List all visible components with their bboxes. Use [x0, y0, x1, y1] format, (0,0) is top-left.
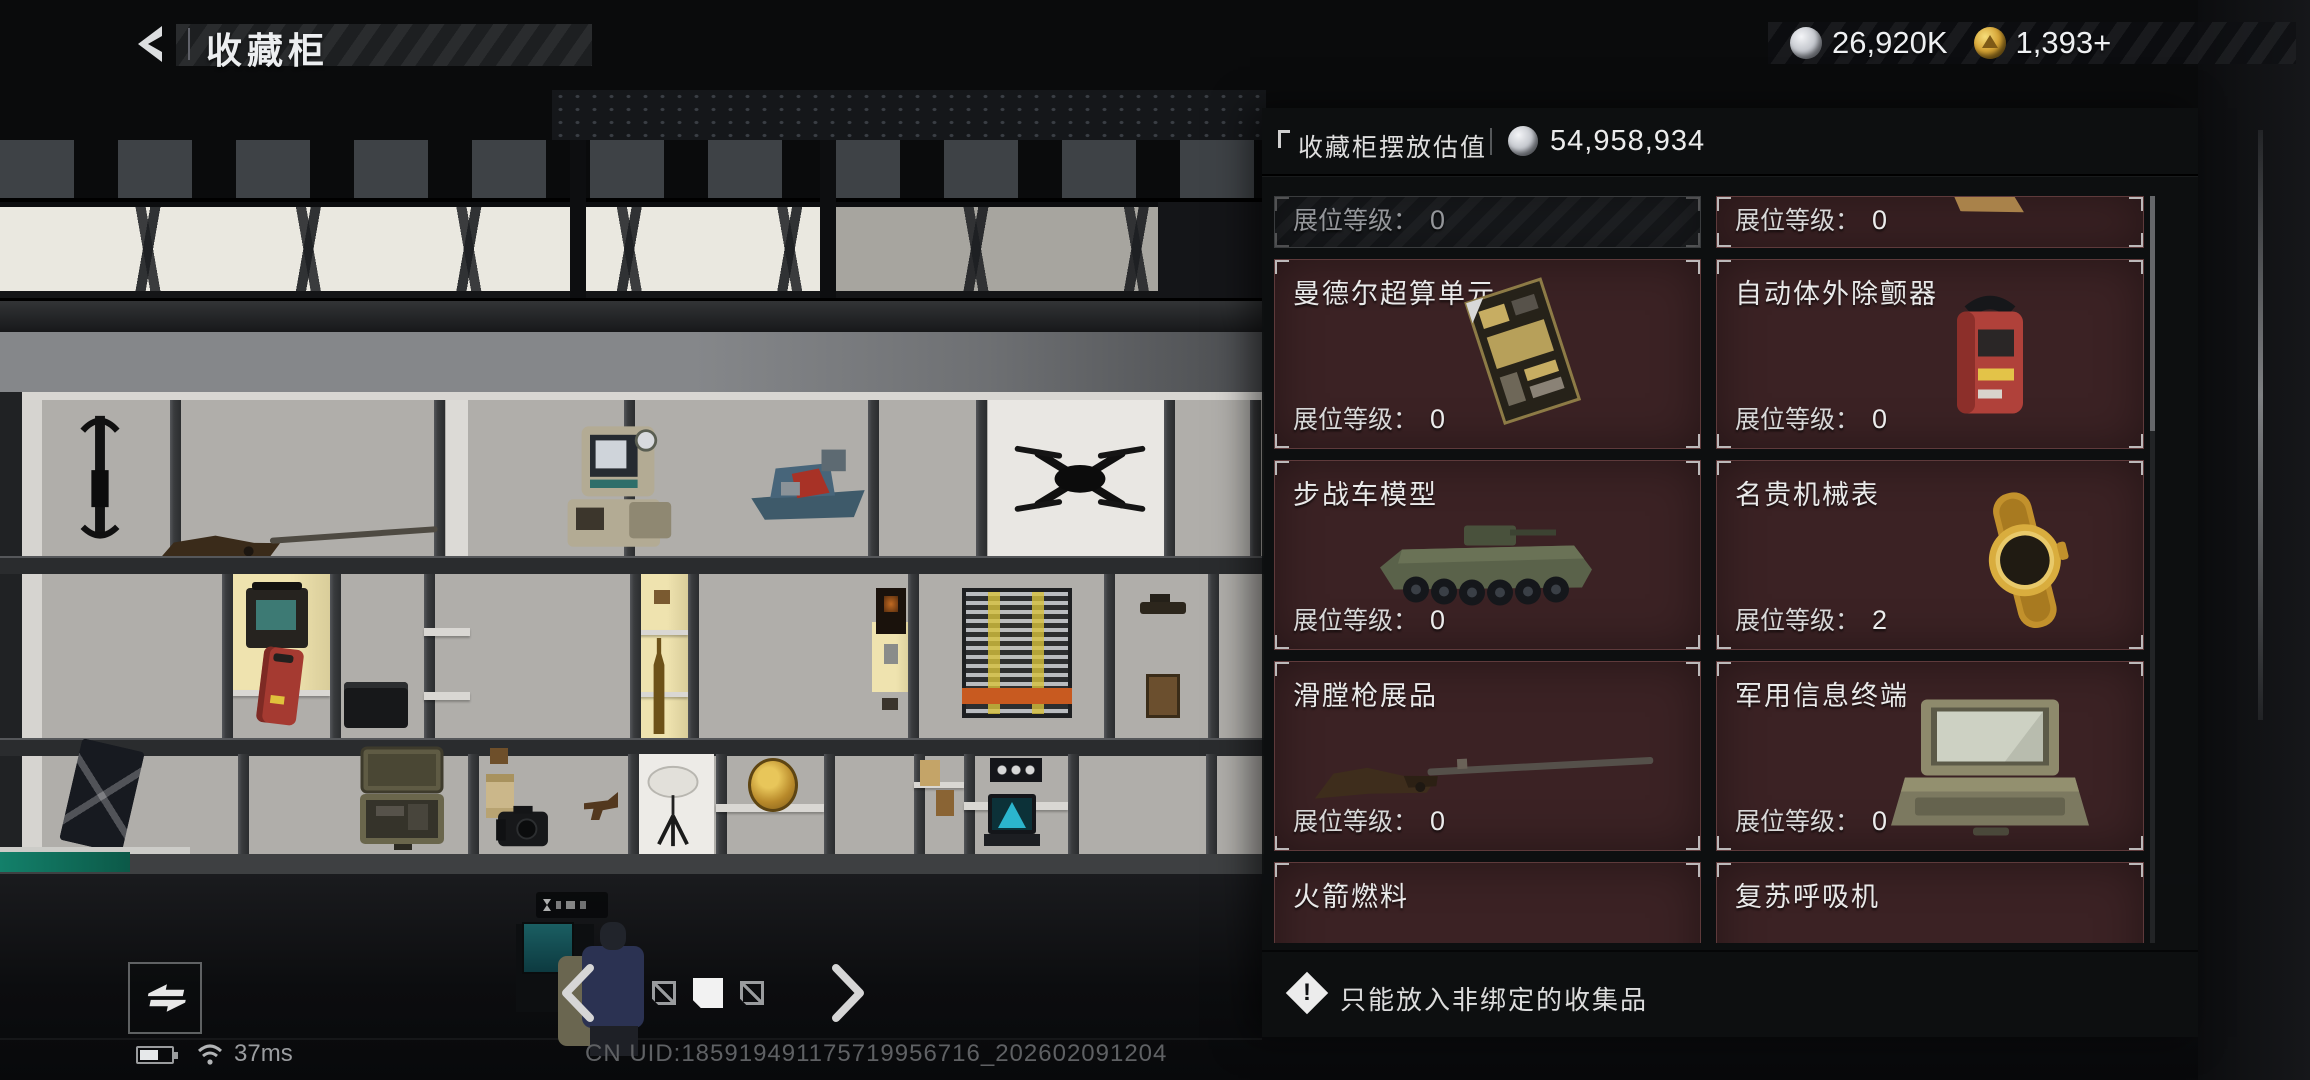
- scrollbar-thumb[interactable]: [2150, 196, 2155, 431]
- booth-level-row: 展位等级：2: [1735, 601, 1887, 637]
- booth-level-value: 0: [1872, 205, 1887, 235]
- exhibit-trinket: [490, 748, 508, 764]
- gold-watch-image: [1932, 469, 2115, 650]
- exhibit-crossbow: [74, 406, 126, 554]
- booth-level-row: 展位等级：0: [1293, 601, 1445, 637]
- warning-diamond-icon: !: [1286, 972, 1328, 1014]
- exhibit-battery-module: [962, 588, 1072, 718]
- nameplate-glyph: [566, 901, 575, 909]
- exhibit-gauge-panel: [990, 758, 1042, 782]
- exhibit-trinket: [654, 590, 670, 604]
- shelf-divider: [330, 574, 341, 740]
- silver-currency-value[interactable]: 26,920K: [1832, 25, 1948, 61]
- collection-panel: 收藏柜摆放估值 54,958,934 展位等级：0 展位等级：0 曼德尔超算单元: [1262, 108, 2198, 1037]
- panel-scrollbar[interactable]: [2150, 196, 2155, 943]
- bracket-icon: [1278, 130, 1290, 148]
- booth-level-row: 展位等级：0: [1735, 400, 1887, 436]
- booth-level-row: 展位等级：0: [1293, 802, 1445, 838]
- shelf-divider: [688, 574, 699, 740]
- exhibit-pistol: [584, 792, 618, 820]
- terminal-image: [1885, 694, 2095, 849]
- shelf-divider: [630, 574, 641, 740]
- cabinet-top-edge: [0, 392, 1264, 400]
- exhibit-poster: [876, 588, 906, 634]
- shelf-divider: [1164, 400, 1175, 558]
- header-separator: [1262, 174, 2198, 176]
- shelf-divider: [238, 754, 249, 854]
- shelf-ledge: [424, 628, 470, 636]
- collectible-card-partial[interactable]: 展位等级：0: [1716, 196, 2144, 248]
- shelf-divider: [908, 574, 919, 740]
- exhibit-camera-device: [494, 804, 552, 852]
- note-text: 只能放入非绑定的收集品: [1340, 980, 1648, 1017]
- shelf-divider: [424, 574, 435, 740]
- exhibit-teal-terminal: [982, 788, 1042, 852]
- booth-level-value: 0: [1872, 806, 1887, 836]
- right-wall: [2198, 0, 2310, 1080]
- gold-currency-value[interactable]: 1,393+: [2016, 25, 2112, 61]
- upper-wall: [0, 332, 1264, 392]
- cabinet-base: [0, 854, 1264, 874]
- back-chevron-icon: [132, 23, 170, 65]
- cabinet-left-edge: [0, 392, 22, 874]
- booth-level-value: 0: [1430, 205, 1445, 235]
- exhibit-field-radio: [246, 588, 308, 648]
- collectible-card-terminal[interactable]: 军用信息终端 展位等级：0: [1716, 661, 2144, 851]
- next-page-button[interactable]: [828, 962, 868, 1024]
- shelf-divider: [1250, 400, 1261, 558]
- panel-title: 收藏柜摆放估值: [1298, 128, 1487, 164]
- booth-level-label: 展位等级：: [1735, 808, 1860, 836]
- shelf-ledge: [636, 630, 688, 635]
- collection-cabinet-screen: 收藏柜 26,920K 1,393+ 收藏柜摆放估值 54,958,934 展位…: [0, 0, 2310, 1080]
- booth-level-value: 0: [1430, 605, 1445, 635]
- card-title: 军用信息终端: [1735, 674, 1909, 713]
- item-sliver: [1950, 196, 2027, 220]
- booth-level-value: 0: [1430, 404, 1445, 434]
- ceiling-light-panel: [0, 202, 828, 298]
- booth-level-label: 展位等级：: [1293, 406, 1418, 434]
- chevron-right-icon: [828, 962, 868, 1024]
- gold-coin-icon[interactable]: [1974, 27, 2006, 59]
- exhibit-small-item: [882, 698, 898, 710]
- back-button[interactable]: [126, 20, 176, 68]
- collectible-card-empty[interactable]: 展位等级：0: [1274, 196, 1701, 248]
- exhibit-small-card: [920, 760, 940, 786]
- cabinet-teal-strip: [0, 852, 130, 872]
- booth-level-value: 2: [1872, 605, 1887, 635]
- exhibit-military-case: [356, 744, 448, 852]
- card-title: 自动体外除颤器: [1735, 272, 1938, 311]
- card-title: 滑膛枪展品: [1293, 674, 1438, 713]
- booth-level-label: 展位等级：: [1293, 607, 1418, 635]
- exhibit-umbrella-antenna: [640, 760, 706, 852]
- shelf-divider: [976, 400, 987, 558]
- ceiling-beam: [0, 298, 1264, 332]
- player-nameplate: [536, 892, 608, 918]
- ceiling-light-panel-dim: [828, 202, 1158, 298]
- page-dot-3[interactable]: [740, 981, 764, 1005]
- swap-arrows-icon: [142, 979, 188, 1017]
- card-title: 复苏呼吸机: [1735, 875, 1880, 914]
- uid-text: CN UID:185919491175719956716_20260209120…: [585, 1040, 1167, 1068]
- nameplate-glyph: [580, 901, 586, 909]
- shelf-divider: [1208, 574, 1219, 740]
- chevron-left-icon: [558, 962, 598, 1024]
- hourglass-icon: [543, 899, 551, 911]
- page-dot-2-active[interactable]: [693, 978, 723, 1008]
- collectible-card-grid: 展位等级：0 展位等级：0 曼德尔超算单元 展位等级：0: [1274, 196, 2146, 943]
- shelf-divider: [628, 754, 639, 854]
- nameplate-glyph: [556, 901, 561, 909]
- exhibit-glove: [936, 790, 954, 816]
- silver-coin-icon[interactable]: [1790, 27, 1822, 59]
- shelf-rail: [0, 556, 1264, 574]
- prev-page-button[interactable]: [558, 962, 598, 1024]
- shelf-divider: [468, 754, 479, 854]
- booth-level-label: 展位等级：: [1735, 607, 1860, 635]
- page-dot-1[interactable]: [652, 981, 676, 1005]
- wifi-icon: [196, 1042, 224, 1071]
- collectible-card-ifv-model[interactable]: 步战车模型 展位等级：0: [1274, 460, 1701, 650]
- page-indicator: [652, 978, 764, 1008]
- exhibit-small-tool: [884, 644, 898, 664]
- card-title: 名贵机械表: [1735, 473, 1880, 512]
- shelf-divider: [222, 574, 233, 740]
- shelf-divider: [1068, 754, 1079, 854]
- booth-level-label: 展位等级：: [1293, 808, 1418, 836]
- page-title: 收藏柜: [206, 22, 329, 74]
- shelf-ledge: [424, 692, 470, 700]
- collectible-card-musket[interactable]: 滑膛枪展品 展位等级：0: [1274, 661, 1701, 851]
- ceiling-beams: [0, 140, 1264, 202]
- booth-level-label: 展位等级：: [1735, 207, 1860, 235]
- wall-light-strip: [2258, 130, 2263, 720]
- panel-header: 收藏柜摆放估值 54,958,934: [1262, 108, 2198, 174]
- switch-view-button[interactable]: [128, 962, 202, 1034]
- card-title: 火箭燃料: [1293, 875, 1409, 914]
- cabinet-total-value: 54,958,934: [1550, 125, 1705, 158]
- exhibit-boat-model: [740, 428, 876, 536]
- exhibit-tank-model: [1140, 594, 1186, 616]
- collectible-card-ventilator[interactable]: 复苏呼吸机: [1716, 862, 2144, 943]
- player-head: [600, 922, 626, 950]
- card-title: 步战车模型: [1293, 473, 1438, 512]
- exhibit-small-board: [1146, 674, 1180, 718]
- booth-level-label: 展位等级：: [1293, 207, 1418, 235]
- booth-level-label: 展位等级：: [1735, 406, 1860, 434]
- collectible-card-gold-watch[interactable]: 名贵机械表 展位等级：2: [1716, 460, 2144, 650]
- silver-coin-icon: [1508, 126, 1538, 156]
- header-divider: [1490, 128, 1492, 155]
- collectible-card-defibrillator[interactable]: 自动体外除颤器 展位等级：0: [1716, 259, 2144, 449]
- exhibit-black-box: [344, 682, 408, 728]
- shelf-divider: [1104, 574, 1115, 740]
- booth-level-row: 展位等级：0: [1735, 201, 1887, 237]
- ceiling-pillar: [570, 140, 586, 298]
- exhibit-red-device: [256, 646, 305, 726]
- cabinet-left-face: [22, 400, 42, 854]
- battery-icon: [136, 1046, 174, 1064]
- booth-level-value: 0: [1872, 404, 1887, 434]
- booth-level-row: 展位等级：0: [1293, 201, 1445, 237]
- exhibit-gold-medal: [748, 758, 798, 812]
- card-title: 曼德尔超算单元: [1293, 272, 1496, 311]
- ceiling-end: [1158, 202, 1264, 298]
- title-divider: [188, 28, 190, 60]
- exhibit-drone: [1008, 428, 1152, 532]
- shelf-white-face: [446, 400, 468, 558]
- booth-level-row: 展位等级：0: [1735, 802, 1887, 838]
- display-cabinet: [0, 392, 1264, 874]
- latency-value: 37ms: [234, 1040, 293, 1068]
- exhibit-cash-register: [548, 418, 688, 558]
- collectible-card-supercomputer[interactable]: 曼德尔超算单元 展位等级：0: [1274, 259, 1701, 449]
- booth-level-row: 展位等级：0: [1293, 400, 1445, 436]
- booth-level-value: 0: [1430, 806, 1445, 836]
- shelf-divider: [824, 754, 835, 854]
- panel-note: ! 只能放入非绑定的收集品: [1262, 950, 2198, 1037]
- shelf-divider: [1206, 754, 1217, 854]
- collectible-card-rocket-fuel[interactable]: 火箭燃料: [1274, 862, 1701, 943]
- ceiling-pillar: [820, 140, 836, 298]
- currency-bar: 26,920K 1,393+: [1768, 22, 2296, 64]
